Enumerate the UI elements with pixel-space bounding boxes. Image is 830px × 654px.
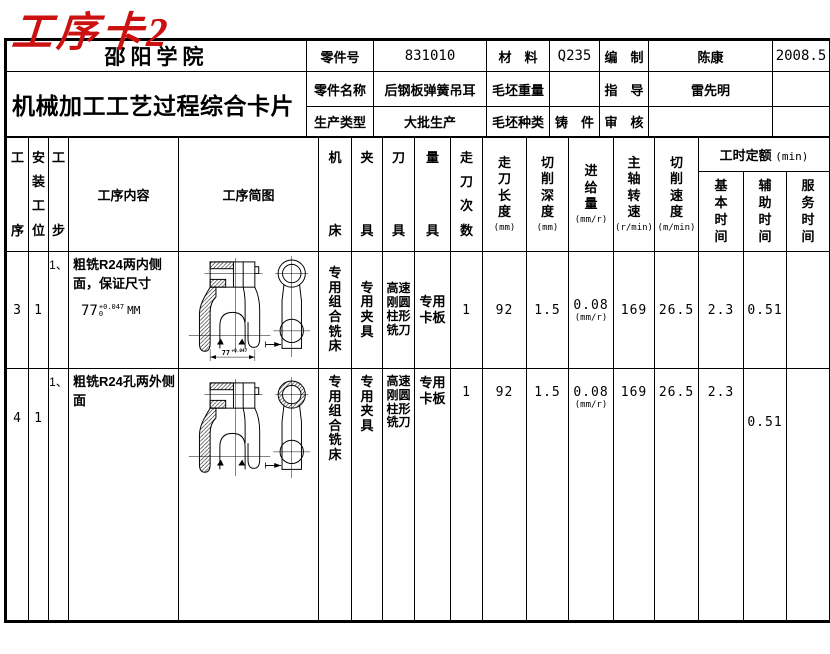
blank-cell <box>773 107 830 137</box>
col-header-content: 工序内容 <box>69 138 179 252</box>
gauge-value: 专用卡板 <box>418 375 448 406</box>
gauge-value: 专用卡板 <box>418 294 448 325</box>
tool-value: 高速刚圆柱形铣刀 <box>385 375 413 430</box>
aux-time-value: 0.51 <box>744 369 787 621</box>
process-sketch-front-side-views: 77 +0.047 <box>181 254 317 365</box>
process-sketch-front-side-views <box>181 375 317 486</box>
process-table: 工序 安装工位 工步 工序内容 工序简图 机床 夹具 刀具 量具 走刀次数 走刀… <box>6 137 830 621</box>
passes-value: 1 <box>451 252 483 369</box>
col-header-basic-time: 基本时间 <box>699 179 743 245</box>
col-header-time-quota: 工时定额 (min) <box>699 138 830 172</box>
basic-time-value: 2.3 <box>699 252 744 369</box>
fixture-value: 专用夹具 <box>352 375 382 433</box>
date-value: 2008.5 <box>773 41 830 72</box>
col-header-spindle-speed: 主轴转速 (r/min) <box>614 156 654 233</box>
col-header-step: 工步 <box>49 151 68 239</box>
col-header-tool: 刀具 <box>383 151 414 239</box>
blank-weight-value <box>550 72 600 107</box>
compiler-value: 陈康 <box>649 41 773 72</box>
col-header-cut-speed: 切削速度 (m/min) <box>655 156 698 233</box>
setup-no: 1 <box>29 252 49 369</box>
cut-speed-value: 26.5 <box>655 252 699 369</box>
setup-no: 1 <box>29 369 49 621</box>
step-no: 1、 <box>49 369 69 621</box>
col-header-setup-station: 安装工位 <box>29 151 48 239</box>
service-time-value <box>787 252 830 369</box>
page-title: 工序卡2 <box>10 0 174 58</box>
passes-value: 1 <box>451 369 483 621</box>
step-no: 1、 <box>49 252 69 369</box>
machine-value: 专用组合铣床 <box>319 266 351 353</box>
tool-value: 高速刚圆柱形铣刀 <box>385 282 413 337</box>
part-name-value: 后钢板弹簧吊耳 <box>374 72 487 107</box>
blank-weight-label: 毛坯重量 <box>487 72 550 107</box>
blank-kind-value: 铸 件 <box>550 107 600 137</box>
process-no: 3 <box>7 252 29 369</box>
process-no: 4 <box>7 369 29 621</box>
blank-cell <box>773 72 830 107</box>
cut-depth-value: 1.5 <box>527 252 569 369</box>
col-header-aux-time: 辅助时间 <box>744 179 786 245</box>
col-header-process-no: 工序 <box>7 151 28 239</box>
process-sketch-cell <box>179 369 319 621</box>
col-header-cut-depth: 切削深度 (mm) <box>527 156 568 233</box>
part-number-label: 零件号 <box>307 41 374 72</box>
advisor-label: 指 导 <box>600 72 649 107</box>
compiler-label: 编 制 <box>600 41 649 72</box>
part-name-label: 零件名称 <box>307 72 374 107</box>
spindle-speed-value: 169 <box>614 252 655 369</box>
col-header-sketch: 工序简图 <box>179 138 319 252</box>
blank-kind-label: 毛坯种类 <box>487 107 550 137</box>
material-label: 材 料 <box>487 41 550 72</box>
dimension-value: 77 +0.0470 MM <box>73 301 176 321</box>
cut-depth-value: 1.5 <box>527 369 569 621</box>
process-content: 粗铣R24孔两外侧面 <box>69 369 179 621</box>
feed-value: 0.08 (mm/r) <box>569 369 614 621</box>
service-time-value <box>787 369 830 621</box>
col-header-machine: 机床 <box>319 151 351 239</box>
production-type-label: 生产类型 <box>307 107 374 137</box>
table-row-process-3: 3 1 1、 粗铣R24两内侧面，保证尺寸 77 +0.0470 MM <box>7 252 830 369</box>
process-card-sheet: 工序卡2 邵阳学院 零件号 831010 材 料 Q235 编 制 陈康 200… <box>0 0 830 654</box>
col-header-fixture: 夹具 <box>352 151 382 239</box>
production-type-value: 大批生产 <box>374 107 487 137</box>
svg-text:77: 77 <box>221 349 229 357</box>
part-number-value: 831010 <box>374 41 487 72</box>
col-header-pass-length: 走刀长度 (mm) <box>483 156 526 233</box>
advisor-value: 雷先明 <box>649 72 773 107</box>
fixture-value: 专用夹具 <box>352 281 382 339</box>
process-sketch-cell: 77 +0.047 <box>179 252 319 369</box>
document-title: 机械加工工艺过程综合卡片 <box>7 72 307 137</box>
audit-value <box>649 107 773 137</box>
basic-time-value: 2.3 <box>699 369 744 621</box>
svg-text:+0.047: +0.047 <box>231 348 247 354</box>
table-row-process-4: 4 1 1、 粗铣R24孔两外侧面 <box>7 369 830 621</box>
col-header-passes: 走刀次数 <box>451 151 482 239</box>
col-header-gauge: 量具 <box>415 151 450 239</box>
process-content: 粗铣R24两内侧面，保证尺寸 77 +0.0470 MM <box>69 252 179 369</box>
machine-value: 专用组合铣床 <box>319 375 351 462</box>
feed-value: 0.08 (mm/r) <box>569 252 614 369</box>
pass-length-value: 92 <box>483 252 527 369</box>
aux-time-value: 0.51 <box>744 252 787 369</box>
col-header-service-time: 服务时间 <box>787 179 829 245</box>
card-table-frame: 邵阳学院 零件号 831010 材 料 Q235 编 制 陈康 2008.5 机… <box>4 38 830 623</box>
audit-label: 审 核 <box>600 107 649 137</box>
spindle-speed-value: 169 <box>614 369 655 621</box>
cut-speed-value: 26.5 <box>655 369 699 621</box>
pass-length-value: 92 <box>483 369 527 621</box>
col-header-feed: 进给量 (mm/r) <box>569 164 613 225</box>
material-value: Q235 <box>550 41 600 72</box>
